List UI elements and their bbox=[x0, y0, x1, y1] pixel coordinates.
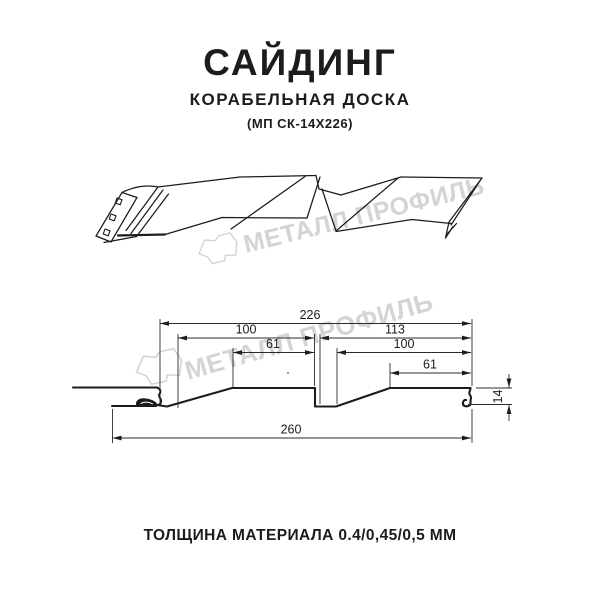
lock-fold-line bbox=[122, 186, 158, 192]
nail-hole bbox=[103, 229, 110, 236]
dim-right-face: 61 bbox=[423, 358, 437, 372]
lock-curl bbox=[157, 388, 162, 406]
center-mark bbox=[287, 372, 289, 374]
metall-profil-logo-icon bbox=[134, 348, 184, 386]
dim-bottom-total: 260 bbox=[281, 423, 302, 437]
dim-left-face: 61 bbox=[266, 337, 280, 351]
nail-hole bbox=[115, 198, 122, 205]
lock-fold-line bbox=[137, 194, 169, 237]
technical-drawing-canvas: МЕТАЛЛ ПРОФИЛЬ МЕТАЛЛ ПРОФИЛЬ bbox=[0, 0, 600, 600]
watermark-upper: МЕТАЛЛ ПРОФИЛЬ bbox=[197, 172, 488, 266]
nail-hole bbox=[109, 214, 116, 221]
lock-bottom-edge bbox=[118, 235, 165, 236]
metall-profil-logo-icon bbox=[197, 232, 240, 266]
watermark-text: МЕТАЛЛ ПРОФИЛЬ bbox=[241, 172, 488, 259]
dim-right-width: 100 bbox=[394, 337, 415, 351]
cross-section-profile bbox=[73, 388, 471, 407]
thickness-note: ТОЛЩИНА МАТЕРИАЛА 0.4/0,45/0,5 ММ bbox=[0, 527, 600, 545]
product-drawing-page: { "header": { "title": "САЙДИНГ", "subti… bbox=[0, 0, 600, 600]
right-edge-break bbox=[469, 388, 471, 403]
right-edge-hem bbox=[463, 400, 471, 406]
lock-fold-line bbox=[104, 237, 137, 243]
dim-height: 14 bbox=[491, 390, 505, 404]
dimension-lines bbox=[113, 319, 513, 443]
profile-outline bbox=[157, 388, 471, 407]
dim-left-width: 100 bbox=[236, 323, 257, 337]
dim-top-total: 226 bbox=[300, 308, 321, 322]
slope-far-edge bbox=[341, 177, 401, 195]
dim-right-total: 113 bbox=[385, 323, 405, 337]
